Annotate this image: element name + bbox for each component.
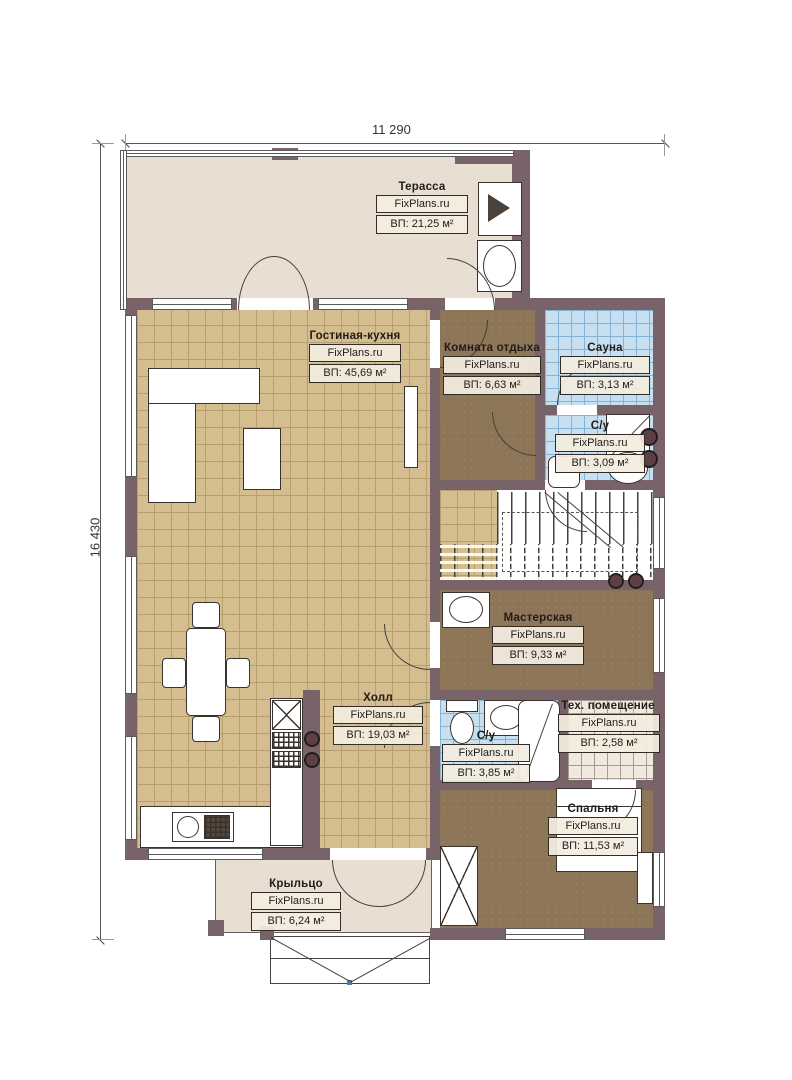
room-brand: FixPlans.ru bbox=[442, 744, 530, 762]
dresser bbox=[637, 852, 653, 904]
chair bbox=[192, 716, 220, 742]
kitchen-drainer bbox=[204, 815, 230, 839]
room-area: ВП: 9,33 м² bbox=[492, 646, 584, 664]
dimension-extension bbox=[92, 939, 114, 940]
entry-door-gap bbox=[330, 848, 426, 860]
room-name: Сауна bbox=[555, 342, 655, 354]
floor-plan: 11 290 16 430 bbox=[0, 0, 792, 1080]
hob-burner bbox=[304, 731, 320, 747]
room-label-tech: Тех. помещениеFixPlans.ruВП: 2,58 м² bbox=[558, 700, 658, 753]
porch-step-line bbox=[270, 958, 430, 959]
room-area: ВП: 11,53 м² bbox=[548, 837, 638, 855]
room-label-living: Гостиная-кухняFixPlans.ruВП: 45,69 м² bbox=[305, 330, 405, 383]
room-label-lounge: Комната отдыхаFixPlans.ruВП: 6,63 м² bbox=[442, 342, 542, 395]
room-name: Тех. помещение bbox=[558, 700, 658, 712]
workshop-door-gap bbox=[430, 622, 440, 668]
window bbox=[152, 298, 232, 310]
coffee-table bbox=[243, 428, 281, 490]
room-area: ВП: 6,24 м² bbox=[251, 912, 341, 930]
room-brand: FixPlans.ru bbox=[548, 817, 638, 835]
room-label-hall: ХоллFixPlans.ruВП: 19,03 м² bbox=[328, 692, 428, 745]
porch-post bbox=[208, 920, 224, 936]
room-name: Гостиная-кухня bbox=[305, 330, 405, 342]
chair bbox=[226, 658, 250, 688]
lounge-door-gap bbox=[430, 320, 440, 368]
room-brand: FixPlans.ru bbox=[309, 344, 401, 362]
wardrobe bbox=[440, 846, 478, 926]
window bbox=[125, 736, 137, 840]
room-area: ВП: 2,58 м² bbox=[558, 734, 660, 752]
washbasin bbox=[449, 596, 483, 623]
room-label-wc2: С/уFixPlans.ruВП: 3,85 м² bbox=[436, 730, 536, 783]
dimension-height-label: 16 430 bbox=[87, 518, 102, 558]
room-name: Крыльцо bbox=[246, 878, 346, 890]
dining-table bbox=[186, 628, 226, 716]
room-area: ВП: 45,69 м² bbox=[309, 364, 401, 382]
room-name: Холл bbox=[328, 692, 428, 704]
room-brand: FixPlans.ru bbox=[333, 706, 423, 724]
kitchen-partition-wall bbox=[303, 690, 320, 848]
room-label-sauna: СаунаFixPlans.ruВП: 3,13 м² bbox=[555, 342, 655, 395]
room-label-workshop: МастерскаяFixPlans.ruВП: 9,33 м² bbox=[488, 612, 588, 665]
dimension-extension bbox=[664, 134, 665, 156]
stove bbox=[272, 751, 301, 768]
wall-workshop-wc2 bbox=[440, 690, 653, 700]
panel-knob bbox=[628, 573, 644, 589]
room-name: Спальня bbox=[543, 803, 643, 815]
window bbox=[653, 598, 665, 673]
window bbox=[125, 315, 137, 477]
room-brand: FixPlans.ru bbox=[492, 626, 584, 644]
panel-knob bbox=[608, 573, 624, 589]
room-label-terrace: ТерассаFixPlans.ruВП: 21,25 м² bbox=[372, 181, 472, 234]
room-area: ВП: 19,03 м² bbox=[333, 726, 423, 744]
hob-burner bbox=[304, 752, 320, 768]
chair bbox=[162, 658, 186, 688]
room-area: ВП: 3,85 м² bbox=[442, 764, 530, 782]
room-brand: FixPlans.ru bbox=[376, 195, 468, 213]
window bbox=[653, 497, 665, 569]
wall-lounge-sauna bbox=[535, 310, 545, 490]
dimension-width-label: 11 290 bbox=[372, 122, 411, 137]
room-area: ВП: 6,63 м² bbox=[443, 376, 541, 394]
dimension-line-top bbox=[125, 143, 665, 144]
window bbox=[125, 556, 137, 694]
sofa bbox=[148, 368, 260, 404]
window bbox=[318, 298, 408, 310]
terrace-glazing-left bbox=[120, 150, 127, 310]
terrace-basin bbox=[483, 245, 516, 287]
room-label-porch: КрыльцоFixPlans.ruВП: 6,24 м² bbox=[246, 878, 346, 931]
room-label-bedroom: СпальняFixPlans.ruВП: 11,53 м² bbox=[543, 803, 643, 856]
room-label-wc1: С/уFixPlans.ruВП: 3,09 м² bbox=[550, 420, 650, 473]
room-area: ВП: 21,25 м² bbox=[376, 215, 468, 233]
room-area: ВП: 3,13 м² bbox=[560, 376, 650, 394]
room-brand: FixPlans.ru bbox=[443, 356, 541, 374]
room-name: Мастерская bbox=[488, 612, 588, 624]
room-name: Комната отдыха bbox=[442, 342, 542, 354]
kitchen-cabinet bbox=[272, 700, 301, 730]
window bbox=[653, 852, 665, 907]
grill-icon bbox=[488, 194, 510, 222]
room-name: С/у bbox=[550, 420, 650, 432]
dimension-extension bbox=[92, 143, 114, 144]
room-brand: FixPlans.ru bbox=[251, 892, 341, 910]
stove bbox=[272, 732, 301, 749]
room-name: С/у bbox=[436, 730, 536, 742]
kitchen-window bbox=[148, 848, 263, 860]
room-brand: FixPlans.ru bbox=[555, 434, 645, 452]
room-name: Терасса bbox=[372, 181, 472, 193]
bedroom-window bbox=[505, 928, 585, 940]
room-brand: FixPlans.ru bbox=[558, 714, 660, 732]
terrace-glazing-top bbox=[122, 150, 514, 157]
toilet-tank bbox=[446, 700, 478, 712]
kitchen-sink-bowl bbox=[177, 816, 199, 838]
porch-steps bbox=[270, 936, 430, 984]
room-area: ВП: 3,09 м² bbox=[555, 454, 645, 472]
room-brand: FixPlans.ru bbox=[560, 356, 650, 374]
grill bbox=[478, 182, 522, 236]
sauna-door-gap bbox=[557, 405, 597, 415]
tv-stand bbox=[404, 386, 418, 468]
chair bbox=[192, 602, 220, 628]
